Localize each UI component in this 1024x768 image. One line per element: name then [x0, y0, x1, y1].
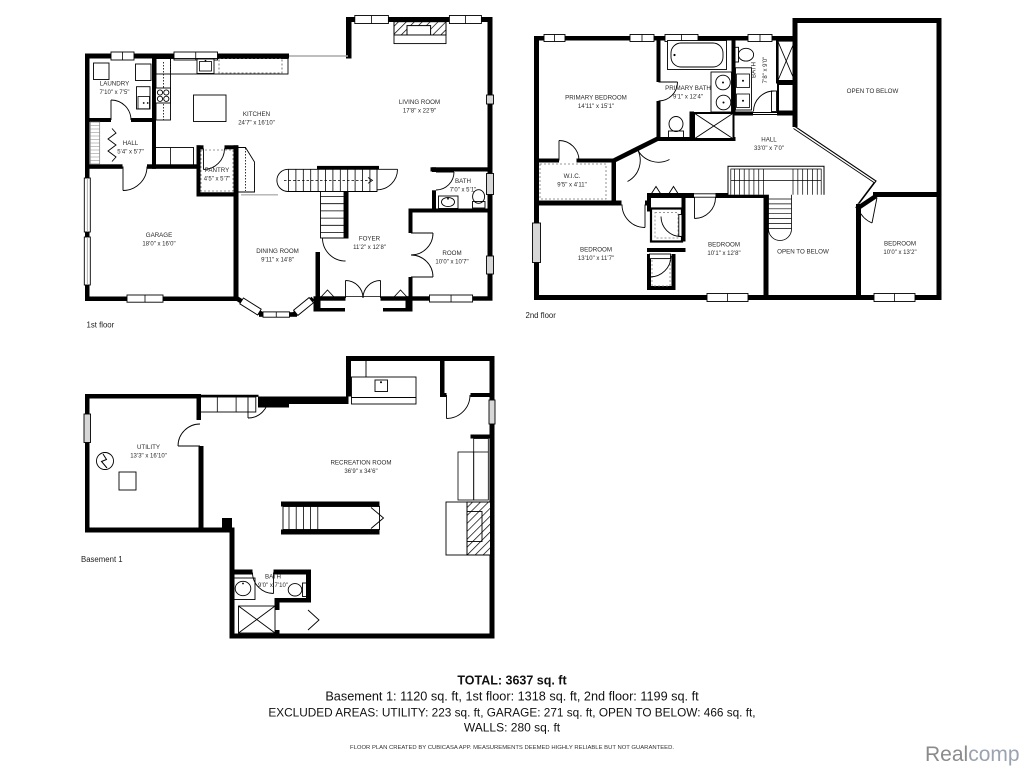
svg-text:24’7" x 16’10": 24’7" x 16’10" — [238, 120, 275, 126]
svg-text:9’11" x 14’8": 9’11" x 14’8" — [261, 257, 294, 263]
svg-text:HALL: HALL — [761, 137, 777, 144]
svg-text:7’8" x 9’0": 7’8" x 9’0" — [763, 57, 769, 84]
svg-text:10’0" x 10’7": 10’0" x 10’7" — [435, 259, 468, 265]
svg-text:36’9" x 34’6": 36’9" x 34’6" — [344, 469, 377, 475]
svg-text:GARAGE: GARAGE — [146, 232, 172, 239]
svg-text:TOTAL: 3637 sq. ft: TOTAL: 3637 sq. ft — [457, 674, 567, 688]
svg-text:OPEN TO BELOW: OPEN TO BELOW — [847, 88, 899, 95]
svg-text:OPEN TO BELOW: OPEN TO BELOW — [777, 249, 829, 256]
svg-text:PRIMARY BEDROOM: PRIMARY BEDROOM — [565, 95, 627, 102]
svg-text:HALL: HALL — [123, 140, 139, 147]
svg-text:7’10" x 7’5": 7’10" x 7’5" — [100, 90, 130, 96]
svg-text:EXCLUDED AREAS: UTILITY: 223 s: EXCLUDED AREAS: UTILITY: 223 sq. ft, GAR… — [268, 706, 755, 720]
svg-text:LAUNDRY: LAUNDRY — [100, 81, 129, 88]
svg-text:10’0" x 13’2": 10’0" x 13’2" — [883, 250, 916, 256]
svg-text:33’0" x 7’0": 33’0" x 7’0" — [754, 146, 784, 152]
svg-text:1st floor: 1st floor — [87, 321, 115, 330]
svg-text:7’0" x 5’1": 7’0" x 5’1" — [450, 187, 477, 193]
svg-text:18’0" x 16’0": 18’0" x 16’0" — [142, 241, 175, 247]
svg-text:BATH: BATH — [455, 178, 471, 185]
svg-text:DINING ROOM: DINING ROOM — [256, 248, 299, 255]
svg-text:4’5" x 5’7": 4’5" x 5’7" — [204, 176, 231, 182]
svg-text:13’10" x 11’7": 13’10" x 11’7" — [578, 256, 614, 262]
svg-text:9’5" x 4’11": 9’5" x 4’11" — [557, 182, 587, 188]
svg-text:17’8" x 22’9": 17’8" x 22’9" — [403, 108, 436, 114]
svg-text:5’4" x 5’7": 5’4" x 5’7" — [117, 149, 144, 155]
svg-text:Basement 1: 1120 sq. ft, 1st f: Basement 1: 1120 sq. ft, 1st floor: 1318… — [325, 690, 699, 704]
svg-text:PANTRY: PANTRY — [205, 167, 230, 174]
svg-text:BEDROOM: BEDROOM — [884, 241, 916, 248]
svg-text:FOYER: FOYER — [359, 236, 381, 243]
svg-text:13’3" x 16’10": 13’3" x 16’10" — [130, 453, 167, 459]
svg-text:14’11" x 15’1": 14’11" x 15’1" — [578, 104, 614, 110]
svg-text:LIVING ROOM: LIVING ROOM — [399, 99, 440, 106]
svg-text:FLOOR PLAN CREATED BY CUBICASA: FLOOR PLAN CREATED BY CUBICASA APP. MEAS… — [350, 745, 674, 751]
svg-text:W.I.C.: W.I.C. — [564, 173, 581, 180]
svg-text:BEDROOM: BEDROOM — [580, 247, 612, 254]
svg-text:KITCHEN: KITCHEN — [243, 111, 270, 118]
svg-text:ROOM: ROOM — [442, 250, 461, 257]
svg-text:PRIMARY BATH: PRIMARY BATH — [665, 85, 711, 92]
svg-text:BEDROOM: BEDROOM — [708, 242, 740, 249]
svg-text:11’2" x 12’8": 11’2" x 12’8" — [353, 245, 386, 251]
svg-text:BATH: BATH — [751, 62, 758, 78]
svg-text:UTILITY: UTILITY — [137, 444, 160, 451]
svg-text:9’1" x 12’4": 9’1" x 12’4" — [673, 94, 703, 100]
svg-text:9’0" x 7’10": 9’0" x 7’10" — [258, 583, 288, 589]
svg-text:RECREATION ROOM: RECREATION ROOM — [330, 460, 391, 467]
svg-text:BATH: BATH — [265, 574, 281, 581]
svg-text:10’1" x 12’8": 10’1" x 12’8" — [707, 251, 740, 257]
svg-text:Realcomp: Realcomp — [925, 743, 1020, 766]
svg-text:2nd floor: 2nd floor — [526, 311, 557, 320]
svg-text:WALLS: 280 sq. ft: WALLS: 280 sq. ft — [464, 721, 561, 735]
svg-text:Basement 1: Basement 1 — [81, 555, 123, 564]
